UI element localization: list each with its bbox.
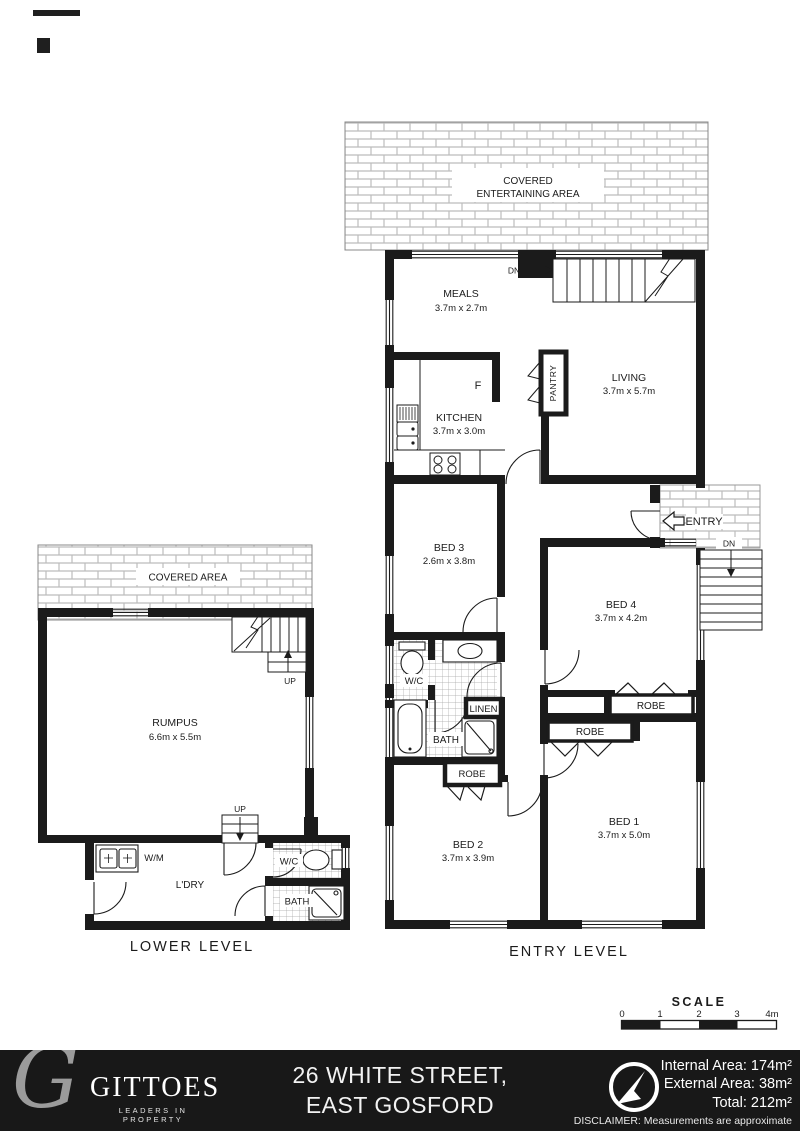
scale-tick-4: 4m bbox=[765, 1009, 778, 1020]
linen-label: LINEN bbox=[470, 704, 498, 715]
disclaimer-text: DISCLAIMER: Measurements are approximate bbox=[574, 1115, 792, 1127]
robe-bed2-label: ROBE bbox=[459, 769, 486, 780]
address-line-2: EAST GOSFORD bbox=[292, 1091, 507, 1121]
scale-bar-segment bbox=[699, 1021, 738, 1029]
scale-bar-segment bbox=[622, 1021, 661, 1029]
bath-label: BATH bbox=[433, 735, 459, 746]
scale-title: SCALE bbox=[672, 995, 727, 1009]
basin bbox=[458, 644, 482, 659]
gittoes-tagline: LEADERS IN PROPERTY bbox=[94, 1106, 212, 1124]
covered-entertaining-label-2: ENTERTAINING AREA bbox=[477, 189, 580, 200]
lower-level-plan: COVERED AREA RUMPUS 6.6m x 5.5m UP UP W/… bbox=[38, 545, 350, 955]
property-address: 26 WHITE STREET, EAST GOSFORD bbox=[292, 1061, 507, 1121]
entry-external-stairs bbox=[700, 550, 762, 630]
laundry-up-stair bbox=[222, 815, 258, 843]
kitchen-label: KITCHEN bbox=[436, 412, 482, 424]
lower-bath-label: BATH bbox=[285, 897, 310, 908]
floorplan-page: COVERED ENTERTAINING AREA MEALS 3.7m x 2… bbox=[0, 0, 800, 1131]
lower-level-title: LOWER LEVEL bbox=[130, 939, 254, 955]
bed1-dims: 3.7m x 5.0m bbox=[598, 830, 650, 841]
bed2-dims: 3.7m x 3.9m bbox=[442, 853, 494, 864]
kitchen-sink bbox=[397, 422, 418, 436]
bed4-dims: 3.7m x 4.2m bbox=[595, 613, 647, 624]
pantry-label: PANTRY bbox=[548, 365, 558, 402]
floorplan-drawing: COVERED ENTERTAINING AREA MEALS 3.7m x 2… bbox=[0, 0, 800, 1131]
total-area: Total: 212m² bbox=[661, 1094, 792, 1112]
fridge-label: F bbox=[475, 380, 482, 392]
covered-entertaining-label-1: COVERED bbox=[503, 176, 552, 187]
up-stair1-label: UP bbox=[284, 676, 296, 686]
covered-area-label: COVERED AREA bbox=[149, 573, 228, 584]
living-dims: 3.7m x 5.7m bbox=[603, 386, 655, 397]
dn-external-label: DN bbox=[723, 539, 735, 549]
gittoes-monogram: G bbox=[12, 1050, 79, 1120]
dn-internal-label: DN bbox=[508, 266, 520, 276]
toilet-bowl bbox=[303, 850, 329, 870]
area-summary: Internal Area: 174m² External Area: 38m²… bbox=[661, 1057, 792, 1112]
entry-level-title: ENTRY LEVEL bbox=[509, 944, 629, 960]
rumpus-staircase bbox=[232, 609, 306, 672]
rumpus-label: RUMPUS bbox=[152, 717, 198, 729]
meals-dims: 3.7m x 2.7m bbox=[435, 303, 487, 314]
scale-tick-2: 2 bbox=[696, 1009, 701, 1020]
north-arrow-icon bbox=[606, 1059, 662, 1115]
internal-area: Internal Area: 174m² bbox=[661, 1057, 792, 1075]
wm-label: W/M bbox=[144, 853, 164, 864]
bed1-label: BED 1 bbox=[609, 816, 640, 828]
robe-bed1-label: ROBE bbox=[576, 727, 605, 738]
scale-bar: SCALE 0 1 2 3 4m bbox=[619, 995, 778, 1029]
footer-bar: G GITTOES LEADERS IN PROPERTY 26 WHITE S… bbox=[0, 1050, 800, 1131]
meals-label: MEALS bbox=[443, 288, 479, 300]
toilet-cistern bbox=[332, 850, 342, 869]
living-label: LIVING bbox=[612, 372, 646, 384]
wc-label: W/C bbox=[405, 676, 424, 687]
scale-tick-3: 3 bbox=[734, 1009, 739, 1020]
rumpus-dims: 6.6m x 5.5m bbox=[149, 732, 201, 743]
bed4-label: BED 4 bbox=[606, 599, 637, 611]
entry-level-plan: COVERED ENTERTAINING AREA MEALS 3.7m x 2… bbox=[345, 122, 762, 960]
up-stair2-label: UP bbox=[234, 804, 246, 814]
robe-bed4-label: ROBE bbox=[637, 701, 666, 712]
toilet-cistern bbox=[399, 642, 425, 650]
scale-tick-0: 0 bbox=[619, 1009, 624, 1020]
external-area: External Area: 38m² bbox=[661, 1075, 792, 1093]
entry-label: ENTRY bbox=[685, 516, 723, 528]
pantry-bifold-door bbox=[528, 362, 540, 403]
scale-tick-1: 1 bbox=[657, 1009, 662, 1020]
bed3-dims: 2.6m x 3.8m bbox=[423, 556, 475, 567]
kitchen-dims: 3.7m x 3.0m bbox=[433, 426, 485, 437]
bed2-label: BED 2 bbox=[453, 839, 484, 851]
address-line-1: 26 WHITE STREET, bbox=[292, 1061, 507, 1091]
bed3-label: BED 3 bbox=[434, 542, 465, 554]
lower-wc-label: W/C bbox=[280, 857, 299, 868]
ldry-label: L'DRY bbox=[176, 880, 205, 891]
gittoes-brand: GITTOES bbox=[90, 1072, 220, 1104]
scan-artifact bbox=[33, 10, 80, 53]
toilet-bowl bbox=[401, 651, 423, 675]
